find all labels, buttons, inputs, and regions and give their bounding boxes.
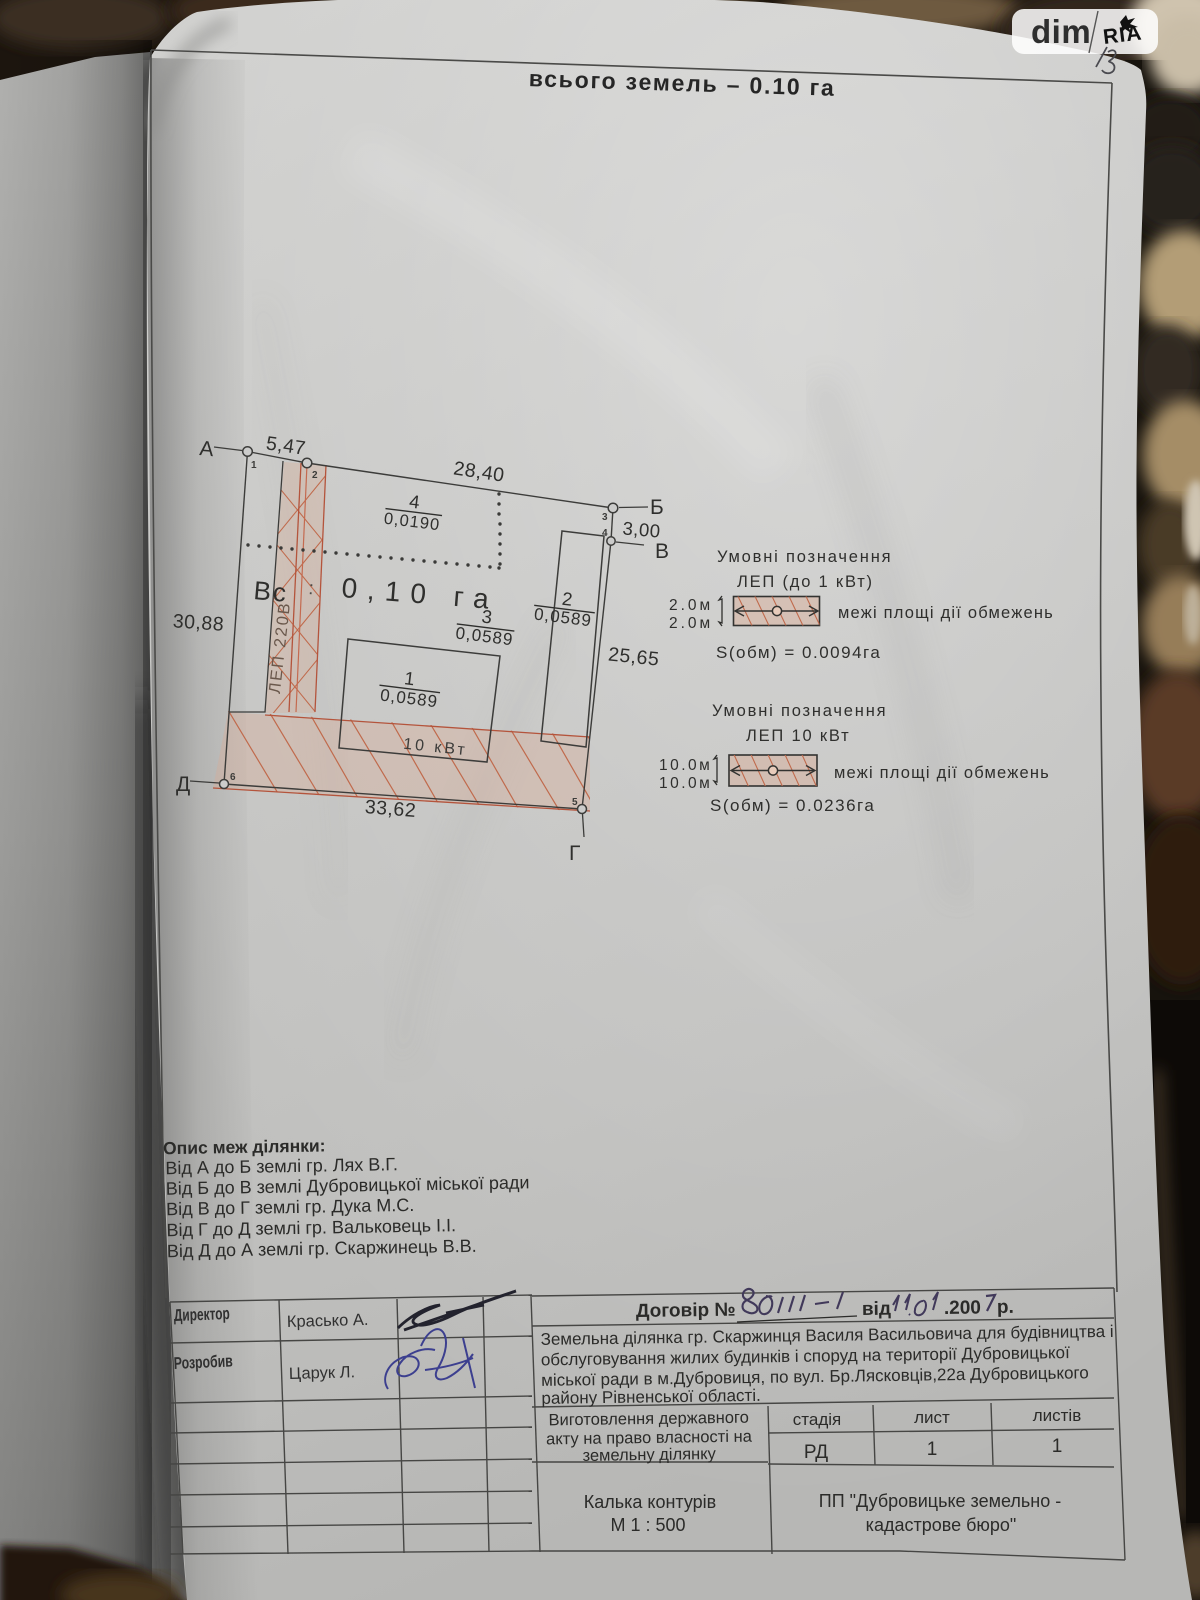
svg-text:ЛЕП (до 1 кВт): ЛЕП (до 1 кВт) xyxy=(737,573,874,591)
svg-text:3: 3 xyxy=(602,512,608,523)
svg-text:РД: РД xyxy=(804,1442,828,1463)
svg-text:лист: лист xyxy=(914,1408,950,1427)
svg-text:S(обм) = 0.0236га: S(обм) = 0.0236га xyxy=(710,796,875,815)
svg-text:стадія: стадія xyxy=(793,1410,841,1429)
svg-text:Д: Д xyxy=(176,773,190,796)
svg-text:Б: Б xyxy=(650,496,664,519)
svg-text:3,00: 3,00 xyxy=(622,517,662,541)
svg-text:ПП "Дубровицьке земельно -: ПП "Дубровицьке земельно - xyxy=(819,1491,1061,1511)
svg-text:1: 1 xyxy=(1052,1436,1063,1457)
svg-text:6: 6 xyxy=(230,772,236,783)
svg-text:10.0м: 10.0м xyxy=(659,757,712,774)
svg-text:листів: листів xyxy=(1033,1406,1082,1425)
svg-text:1: 1 xyxy=(927,1439,938,1460)
svg-text:земельну ділянку: земельну ділянку xyxy=(582,1445,716,1465)
svg-text:Виготовлення державного: Виготовлення державного xyxy=(548,1409,748,1430)
svg-text:10.0м: 10.0м xyxy=(659,775,712,792)
svg-text:Опис меж ділянки:: Опис меж ділянки: xyxy=(163,1135,326,1158)
svg-text:.200: .200 xyxy=(944,1297,981,1319)
svg-text:dim: dim xyxy=(1031,13,1091,50)
svg-text:А: А xyxy=(199,437,215,461)
svg-text:кадастрове бюро": кадастрове бюро" xyxy=(866,1515,1017,1535)
svg-text:Умовні позначення: Умовні позначення xyxy=(712,702,887,720)
svg-text:Г: Г xyxy=(569,842,580,865)
svg-text:2.0м: 2.0м xyxy=(669,597,713,614)
svg-text:Красько А.: Красько А. xyxy=(287,1311,369,1331)
svg-text:5: 5 xyxy=(572,797,578,808)
svg-text:1: 1 xyxy=(251,460,257,471)
svg-text:межі площі дії обмежень: межі площі дії обмежень xyxy=(838,604,1054,622)
svg-text:2: 2 xyxy=(312,470,318,481)
svg-text:Царук Л.: Царук Л. xyxy=(289,1363,356,1383)
svg-text:району Рівненської області.: району Рівненської області. xyxy=(541,1386,761,1408)
svg-text:Калька контурів: Калька контурів xyxy=(584,1492,717,1512)
svg-text:межі площі дії обмежень: межі площі дії обмежень xyxy=(834,764,1050,782)
svg-text:Умовні позначення: Умовні позначення xyxy=(717,548,892,566)
svg-text:ЛЕП 10 кВт: ЛЕП 10 кВт xyxy=(746,727,850,745)
svg-text:від: від xyxy=(862,1299,891,1320)
svg-text:4: 4 xyxy=(602,528,608,539)
svg-text:30,88: 30,88 xyxy=(172,610,225,636)
svg-text:Договір №: Договір № xyxy=(636,1300,736,1322)
svg-text:В: В xyxy=(655,540,669,563)
svg-text:р.: р. xyxy=(997,1297,1014,1318)
svg-text:2.0м: 2.0м xyxy=(669,615,713,632)
svg-text:М 1 : 500: М 1 : 500 xyxy=(610,1515,685,1535)
svg-text:Вс: Вс xyxy=(252,575,289,608)
svg-text:Директор: Директор xyxy=(173,1304,230,1325)
svg-text:33,62: 33,62 xyxy=(364,796,417,822)
svg-text:S(обм) = 0.0094га: S(обм) = 0.0094га xyxy=(716,643,881,662)
svg-text:Розробив: Розробив xyxy=(173,1351,233,1373)
